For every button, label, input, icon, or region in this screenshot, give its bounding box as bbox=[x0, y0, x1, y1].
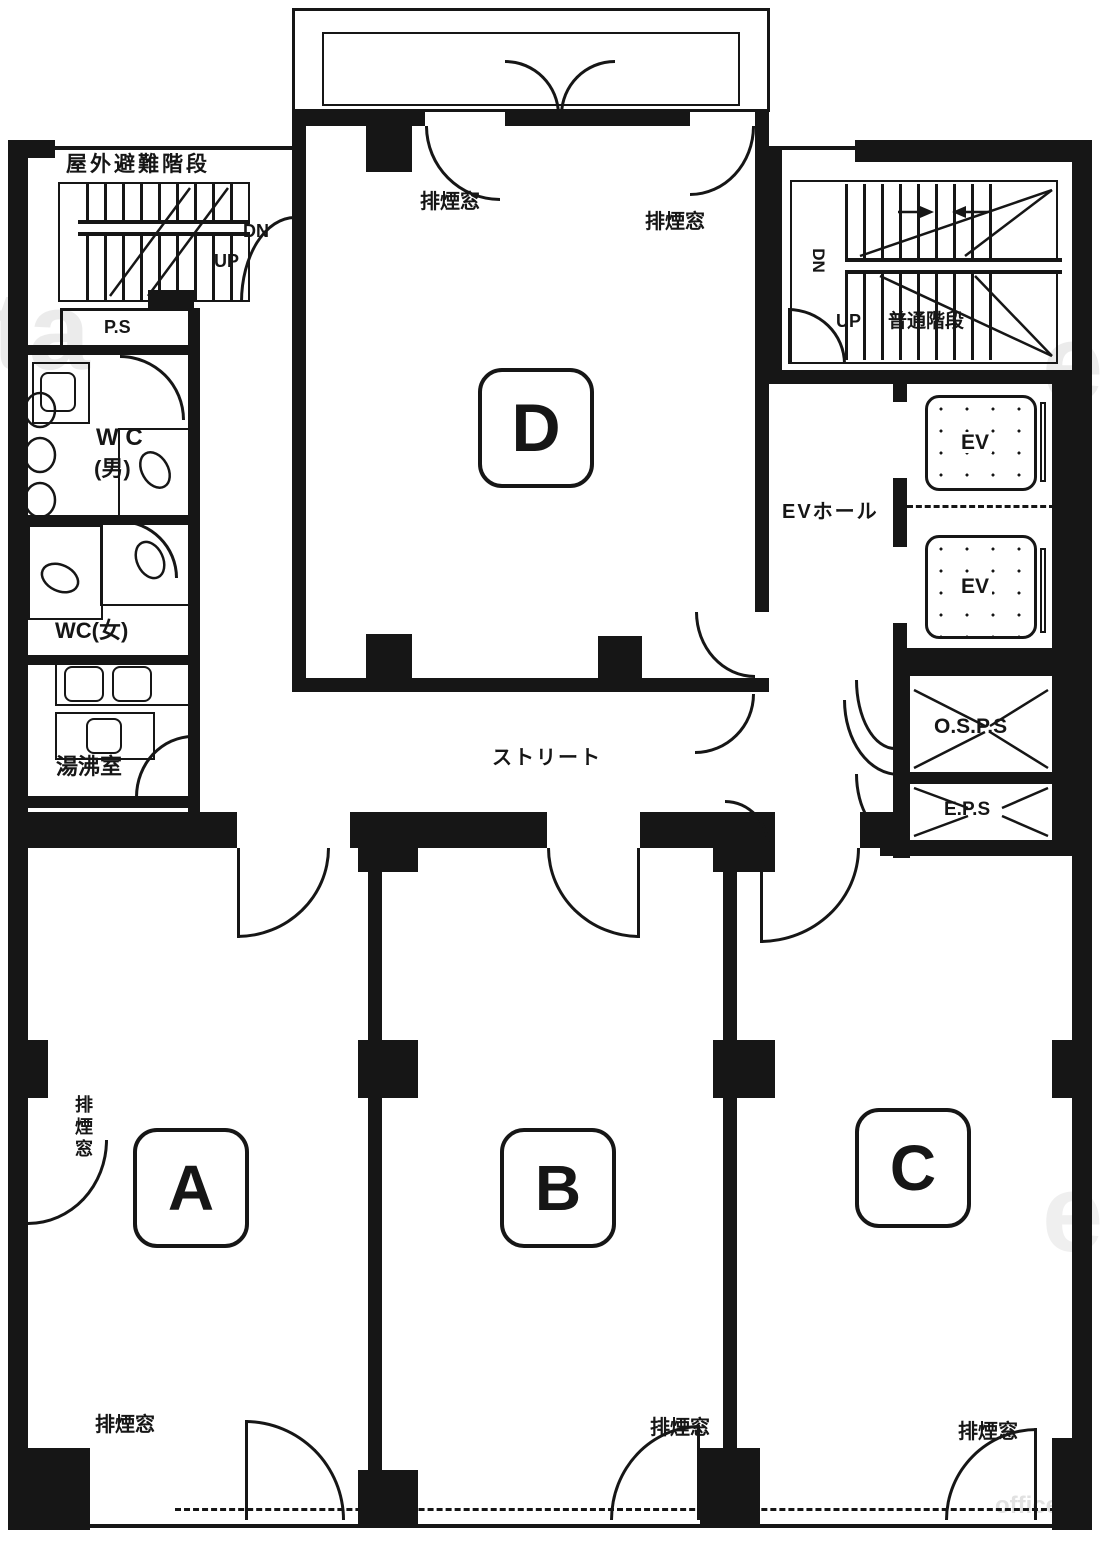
door-arc bbox=[245, 1420, 345, 1520]
wall-segment bbox=[910, 772, 1052, 784]
wc-men-label: (男) bbox=[94, 458, 131, 480]
wall-segment bbox=[8, 812, 237, 848]
smoke-vent-label: 排煙窓 bbox=[650, 1418, 710, 1438]
wall-segment bbox=[292, 112, 425, 126]
wall-segment bbox=[148, 290, 194, 308]
toilet-stall bbox=[28, 525, 103, 620]
smoke-vent-label: 排煙窓 bbox=[645, 212, 705, 232]
elevator-label: EV bbox=[958, 432, 992, 453]
room-label-b: B bbox=[535, 1151, 581, 1225]
stair-landing-bar bbox=[78, 220, 250, 236]
door-arc bbox=[690, 126, 755, 196]
door-arc bbox=[610, 1425, 700, 1520]
room-label-d: D bbox=[511, 389, 560, 467]
wall-segment bbox=[893, 623, 907, 648]
ev-hall-label: EVホール bbox=[782, 502, 879, 522]
shaft-divider-dashed bbox=[907, 505, 1055, 508]
stairs-up-label: UP bbox=[214, 252, 239, 270]
stairs-up-label: UP bbox=[836, 312, 861, 330]
door-arc bbox=[425, 126, 500, 201]
wall-segment bbox=[368, 848, 382, 1528]
wc-women-label: WC(女) bbox=[55, 620, 128, 642]
column-block bbox=[598, 636, 642, 678]
wall-segment bbox=[893, 648, 1070, 662]
room-label-a: A bbox=[168, 1151, 214, 1225]
wall-segment bbox=[893, 384, 907, 402]
room-box-d: D bbox=[478, 368, 594, 488]
smoke-vent-label: 排煙窓 bbox=[420, 192, 480, 212]
column-block bbox=[358, 1470, 418, 1528]
wall-segment bbox=[768, 370, 1092, 384]
door-arc bbox=[237, 848, 330, 938]
wall-segment bbox=[28, 796, 195, 808]
street-corridor-label: ストリート bbox=[492, 748, 602, 768]
wall-segment bbox=[505, 112, 690, 126]
wall-segment bbox=[1052, 370, 1072, 848]
column-block bbox=[700, 1448, 760, 1528]
stairs-dn-label: DN bbox=[810, 248, 827, 273]
wall-segment bbox=[8, 1524, 1092, 1528]
elevator-label: EV bbox=[958, 576, 992, 597]
wall-segment bbox=[855, 140, 1092, 162]
room-box-c: C bbox=[855, 1108, 971, 1228]
smoke-vent-label: 排煙窓 bbox=[74, 1095, 92, 1161]
door-arc bbox=[547, 848, 640, 938]
sink-basin bbox=[86, 718, 122, 754]
door-arc bbox=[695, 612, 755, 678]
wall-segment bbox=[1072, 150, 1092, 1530]
column-block bbox=[366, 634, 412, 678]
door-arc bbox=[120, 355, 185, 420]
wall-segment bbox=[723, 848, 737, 1528]
osps-shaft-label: O.S.P.S bbox=[930, 716, 1011, 737]
door-arc bbox=[725, 800, 770, 848]
floor-plan-canvas: ta e e office D 排煙窓 排煙窓 屋外避難階段 DN UP P.S bbox=[0, 0, 1104, 1543]
stair-landing-bar bbox=[845, 258, 1062, 274]
door-arc bbox=[695, 694, 755, 754]
stairs-dn-label: DN bbox=[243, 222, 269, 240]
column-block bbox=[1052, 1438, 1092, 1530]
wall-segment bbox=[8, 1448, 90, 1530]
outdoor-escape-stairs-label: 屋外避難階段 bbox=[66, 154, 210, 175]
column-block bbox=[358, 1040, 418, 1098]
door-arc bbox=[28, 1140, 108, 1225]
smoke-vent-label: 排煙窓 bbox=[958, 1422, 1018, 1442]
wc-men-label: W C bbox=[96, 426, 143, 450]
room-box-a: A bbox=[133, 1128, 249, 1248]
ordinary-stairs-label: 普通階段 bbox=[888, 312, 964, 331]
ps-label: P.S bbox=[104, 318, 131, 336]
wall-segment bbox=[893, 662, 1072, 676]
column-block bbox=[8, 1040, 48, 1098]
wall-segment bbox=[755, 112, 769, 612]
sink-basin bbox=[40, 372, 76, 412]
wall-segment bbox=[28, 345, 195, 355]
smoke-vent-label: 排煙窓 bbox=[95, 1415, 155, 1435]
elevator-door-sill bbox=[1040, 402, 1046, 482]
sink-basin bbox=[112, 666, 152, 702]
elevator-door-sill bbox=[1040, 548, 1046, 633]
wall-segment bbox=[880, 840, 1072, 856]
eps-shaft-label: E.P.S bbox=[940, 800, 994, 819]
wall-segment bbox=[768, 148, 782, 384]
wall-segment bbox=[292, 678, 769, 692]
column-block bbox=[713, 1040, 775, 1098]
wall-segment bbox=[860, 812, 907, 848]
room-label-c: C bbox=[890, 1131, 936, 1205]
column-block bbox=[1052, 1040, 1092, 1098]
column-block bbox=[366, 126, 412, 172]
column-block bbox=[358, 812, 418, 872]
room-box-b: B bbox=[500, 1128, 616, 1248]
wall-segment bbox=[28, 146, 292, 150]
stair-treads bbox=[86, 184, 242, 300]
sink-basin bbox=[64, 666, 104, 702]
wall-segment bbox=[893, 478, 907, 547]
kitchenette-label: 湯沸室 bbox=[56, 756, 122, 778]
wall-segment bbox=[292, 112, 306, 692]
door-arc bbox=[760, 848, 860, 943]
